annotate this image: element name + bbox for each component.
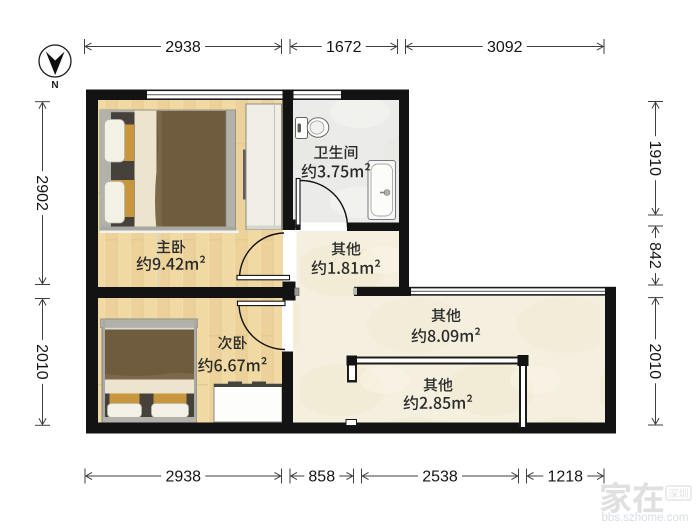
svg-text:2538: 2538: [422, 469, 458, 486]
svg-text:1218: 1218: [547, 469, 583, 486]
svg-text:858: 858: [308, 469, 335, 486]
svg-text:1672: 1672: [326, 39, 362, 56]
svg-text:3092: 3092: [487, 39, 523, 56]
svg-text:2938: 2938: [165, 39, 201, 56]
svg-text:2938: 2938: [165, 469, 201, 486]
svg-text:2902: 2902: [33, 175, 50, 211]
svg-text:2010: 2010: [33, 344, 50, 380]
svg-text:842: 842: [646, 242, 663, 269]
svg-text:2010: 2010: [646, 344, 663, 380]
svg-text:bbs.szhome.com: bbs.szhome.com: [602, 512, 689, 524]
svg-text:N: N: [51, 80, 58, 91]
svg-text:1910: 1910: [646, 140, 663, 176]
